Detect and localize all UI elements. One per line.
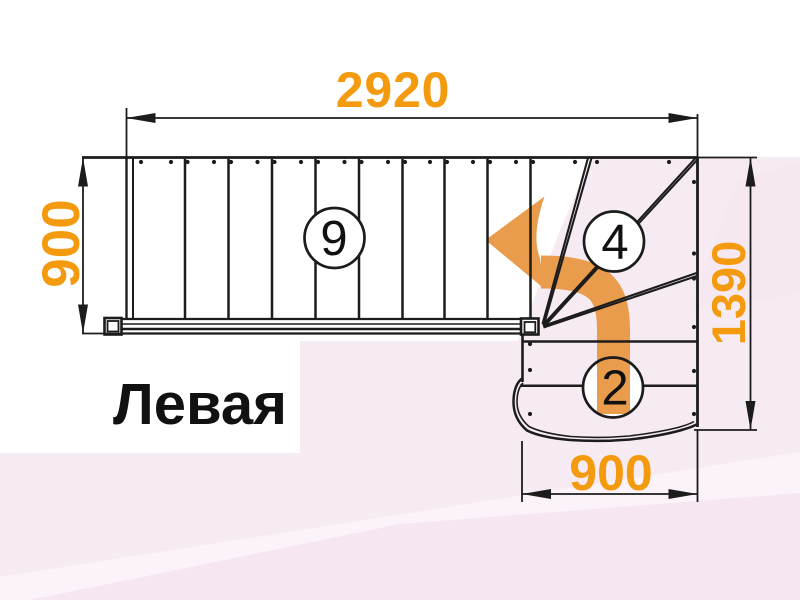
svg-text:9: 9 (320, 212, 347, 266)
svg-text:4: 4 (601, 216, 628, 270)
svg-text:2920: 2920 (336, 62, 450, 118)
svg-text:2: 2 (601, 362, 628, 416)
svg-text:900: 900 (569, 445, 652, 501)
svg-text:Левая: Левая (113, 372, 287, 437)
svg-text:1390: 1390 (702, 241, 755, 346)
svg-text:900: 900 (32, 199, 91, 287)
